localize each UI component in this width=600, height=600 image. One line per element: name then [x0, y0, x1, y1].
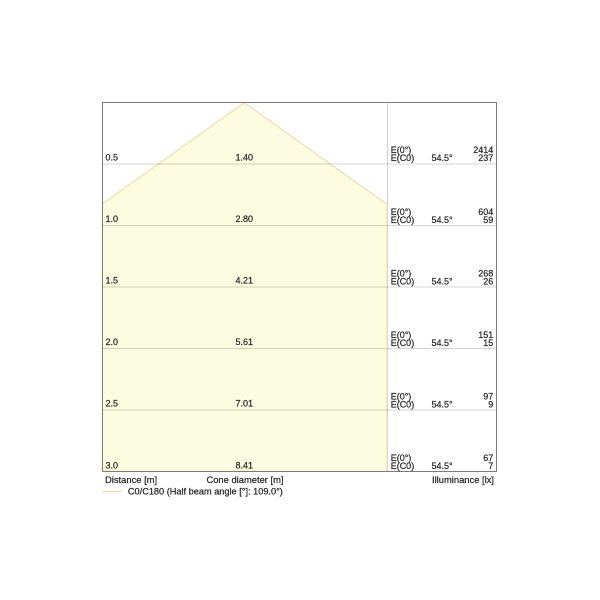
svg-text:0.5: 0.5	[106, 153, 119, 163]
svg-text:1.0: 1.0	[106, 214, 119, 224]
svg-text:Cone diameter [m]: Cone diameter [m]	[206, 474, 283, 485]
svg-text:26: 26	[483, 276, 493, 286]
svg-text:C0/C180 (Half beam angle [°]:: C0/C180 (Half beam angle [°]: 109.0°)	[128, 487, 283, 497]
svg-text:54.5°: 54.5°	[432, 215, 454, 225]
svg-text:2.80: 2.80	[236, 214, 254, 224]
svg-text:54.5°: 54.5°	[432, 276, 454, 286]
svg-text:E(C0): E(C0)	[391, 461, 415, 471]
svg-text:E(C0): E(C0)	[391, 215, 415, 225]
svg-text:54.5°: 54.5°	[432, 153, 454, 163]
svg-text:2.5: 2.5	[106, 399, 119, 409]
svg-text:5.61: 5.61	[236, 337, 254, 347]
svg-text:7.01: 7.01	[236, 399, 254, 409]
svg-text:54.5°: 54.5°	[432, 399, 454, 409]
svg-text:E(C0): E(C0)	[391, 399, 415, 409]
svg-text:1.40: 1.40	[236, 153, 254, 163]
svg-text:15: 15	[483, 338, 493, 348]
svg-text:E(C0): E(C0)	[391, 338, 415, 348]
svg-text:E(C0): E(C0)	[391, 276, 415, 286]
svg-text:Distance [m]: Distance [m]	[105, 474, 157, 485]
svg-text:54.5°: 54.5°	[432, 338, 454, 348]
svg-text:4.21: 4.21	[236, 276, 254, 286]
svg-text:E(C0): E(C0)	[391, 153, 415, 163]
svg-text:7: 7	[488, 461, 493, 471]
svg-text:3.0: 3.0	[106, 460, 119, 470]
svg-text:1.5: 1.5	[106, 276, 119, 286]
svg-text:59: 59	[483, 215, 493, 225]
svg-text:Illuminance [lx]: Illuminance [lx]	[432, 474, 494, 485]
svg-text:2.0: 2.0	[106, 337, 119, 347]
svg-text:54.5°: 54.5°	[432, 461, 454, 471]
svg-text:237: 237	[478, 153, 493, 163]
svg-text:8.41: 8.41	[236, 460, 254, 470]
svg-text:9: 9	[488, 399, 493, 409]
